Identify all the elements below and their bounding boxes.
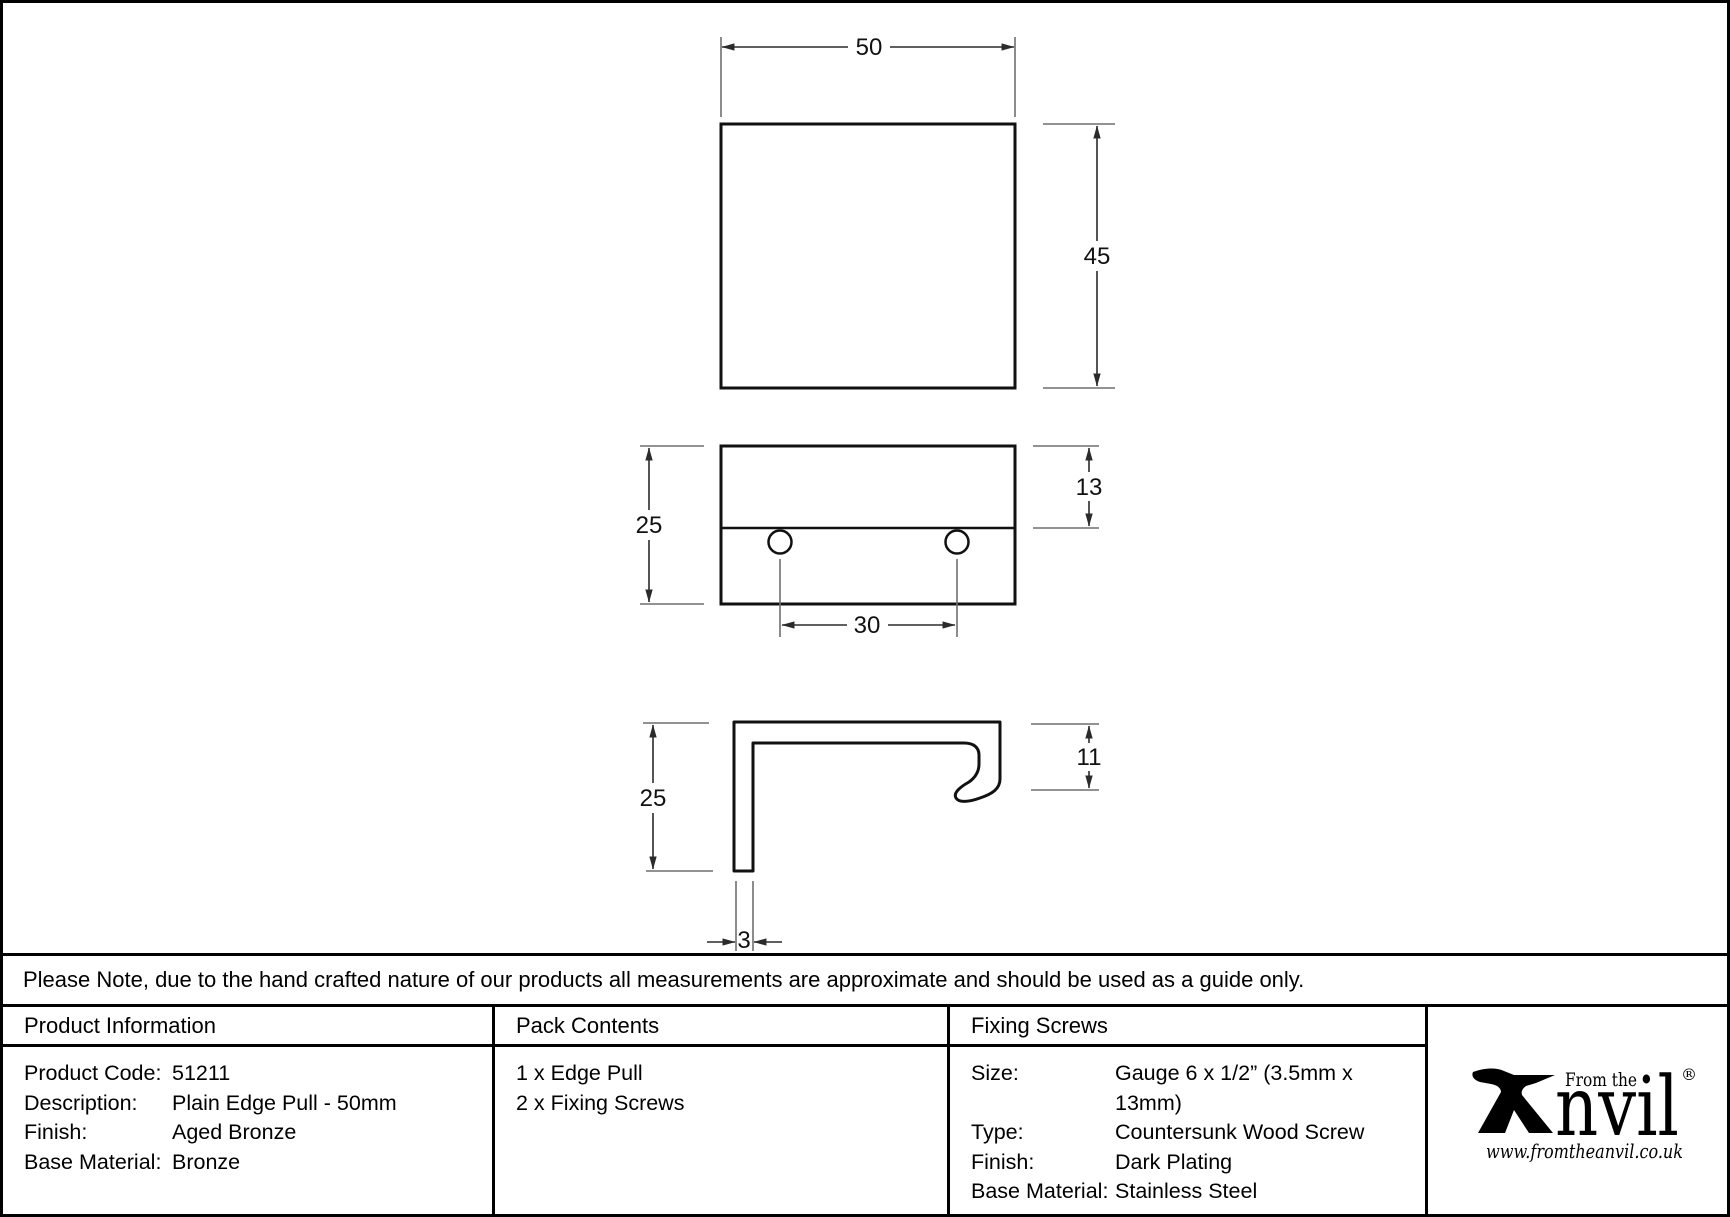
- spec-value: Dark Plating: [1115, 1148, 1232, 1178]
- from-the-anvil-logo: From the nvil ® www.fromtheanvil.co.uk: [1458, 1062, 1718, 1177]
- dim-label-side-thickness: 3: [737, 927, 750, 951]
- spec-value: 51211: [172, 1059, 230, 1089]
- pack-item: 2 x Fixing Screws: [516, 1089, 947, 1119]
- spec-value: Gauge 6 x 1/2” (3.5mm x 13mm): [1115, 1059, 1425, 1118]
- spec-label: Size:: [971, 1059, 1115, 1118]
- logo-url-text: www.fromtheanvil.co.uk: [1486, 1139, 1683, 1163]
- fixing-screws-header: Fixing Screws: [950, 1007, 1425, 1047]
- product-spec-sheet: 50 45 25 13: [0, 0, 1730, 1217]
- pack-contents-column: Pack Contents 1 x Edge Pull 2 x Fixing S…: [492, 1007, 947, 1214]
- spec-value: Stainless Steel: [1115, 1177, 1257, 1207]
- registered-trademark-icon: ®: [1681, 1065, 1697, 1084]
- spec-label: Base Material:: [24, 1148, 172, 1178]
- technical-drawing: 50 45 25 13: [3, 3, 1727, 951]
- pack-item: 1 x Edge Pull: [516, 1059, 947, 1089]
- spec-label: Finish:: [24, 1118, 172, 1148]
- info-table: Product Information Product Code: 51211 …: [3, 1007, 1727, 1214]
- screw-hole-right: [946, 531, 969, 554]
- dim-label-front-height: 25: [636, 512, 663, 539]
- spec-value: Plain Edge Pull - 50mm: [172, 1089, 397, 1119]
- column-header-label: Product Information: [24, 1013, 216, 1039]
- column-header-label: Pack Contents: [516, 1013, 659, 1039]
- dim-label-front-top-section: 13: [1076, 474, 1103, 501]
- dim-label-top-width: 50: [856, 34, 883, 61]
- front-view-outline: [721, 446, 1015, 604]
- spec-row: Size: Gauge 6 x 1/2” (3.5mm x 13mm): [971, 1059, 1425, 1118]
- spec-row: Product Code: 51211: [24, 1059, 492, 1089]
- dim-label-top-height: 45: [1084, 243, 1111, 270]
- spec-label: Description:: [24, 1089, 172, 1119]
- spec-label: Finish:: [971, 1148, 1115, 1178]
- spec-label: Product Code:: [24, 1059, 172, 1089]
- spec-value: Countersunk Wood Screw: [1115, 1118, 1364, 1148]
- top-view-outline: [721, 124, 1015, 388]
- spec-label: Base Material:: [971, 1177, 1115, 1207]
- product-information-header: Product Information: [3, 1007, 492, 1047]
- product-information-column: Product Information Product Code: 51211 …: [3, 1007, 492, 1214]
- spec-row: Finish: Aged Bronze: [24, 1118, 492, 1148]
- anvil-icon: [1472, 1068, 1555, 1133]
- spec-label: Type:: [971, 1118, 1115, 1148]
- spec-row: Finish: Dark Plating: [971, 1148, 1425, 1178]
- spec-row: Base Material: Bronze: [24, 1148, 492, 1178]
- brand-logo-cell: From the nvil ® www.fromtheanvil.co.uk: [1425, 1007, 1727, 1214]
- spec-value: Aged Bronze: [172, 1118, 296, 1148]
- dim-label-hole-spacing: 30: [854, 612, 881, 639]
- dim-label-side-lip: 11: [1077, 744, 1102, 771]
- column-header-label: Fixing Screws: [971, 1013, 1108, 1039]
- spec-row: Type: Countersunk Wood Screw: [971, 1118, 1425, 1148]
- pack-contents-header: Pack Contents: [495, 1007, 947, 1047]
- spec-value: Bronze: [172, 1148, 240, 1178]
- spec-row: Description: Plain Edge Pull - 50mm: [24, 1089, 492, 1119]
- measurement-note-row: Please Note, due to the hand crafted nat…: [3, 953, 1727, 1007]
- dim-label-side-height: 25: [640, 785, 667, 812]
- screw-hole-left: [769, 531, 792, 554]
- side-profile-outline: [734, 722, 1000, 871]
- measurement-note-text: Please Note, due to the hand crafted nat…: [23, 967, 1304, 993]
- spec-row: Base Material: Stainless Steel: [971, 1177, 1425, 1207]
- fixing-screws-column: Fixing Screws Size: Gauge 6 x 1/2” (3.5m…: [947, 1007, 1425, 1214]
